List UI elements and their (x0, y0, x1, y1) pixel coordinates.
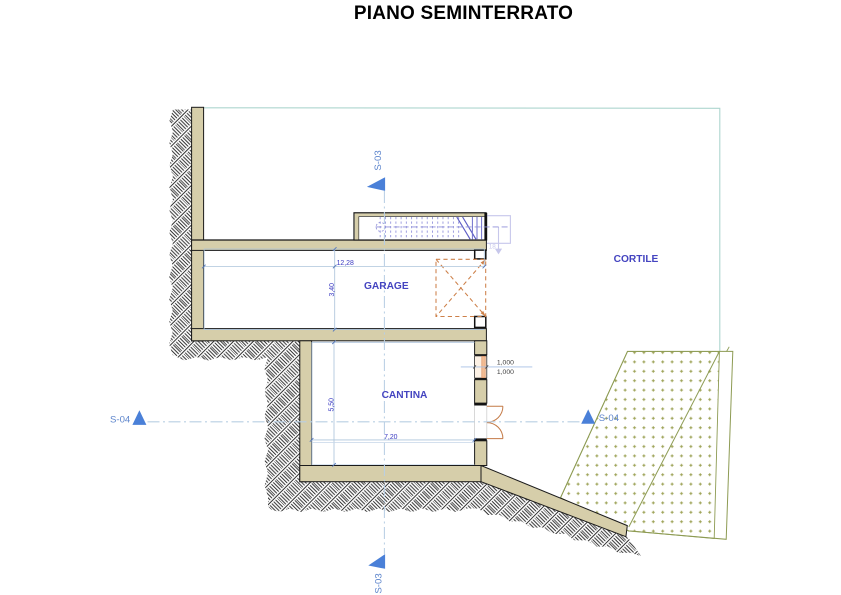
svg-text:18: 18 (489, 244, 497, 251)
svg-text:CANTINA: CANTINA (382, 390, 428, 401)
svg-text:PIANO SEMINTERRATO: PIANO SEMINTERRATO (354, 3, 573, 24)
svg-text:1,000: 1,000 (497, 369, 514, 376)
svg-text:S-04: S-04 (110, 414, 131, 425)
svg-text:3,40: 3,40 (329, 283, 336, 297)
svg-text:1,000: 1,000 (497, 360, 514, 367)
svg-text:S-04: S-04 (599, 413, 620, 424)
svg-text:7,20: 7,20 (384, 434, 398, 441)
svg-text:CORTILE: CORTILE (614, 254, 659, 265)
svg-text:S-03: S-03 (373, 150, 384, 170)
svg-text:S-03: S-03 (373, 573, 384, 593)
svg-text:12,28: 12,28 (337, 260, 354, 267)
svg-text:5,50: 5,50 (328, 398, 335, 412)
svg-text:GARAGE: GARAGE (364, 281, 409, 292)
